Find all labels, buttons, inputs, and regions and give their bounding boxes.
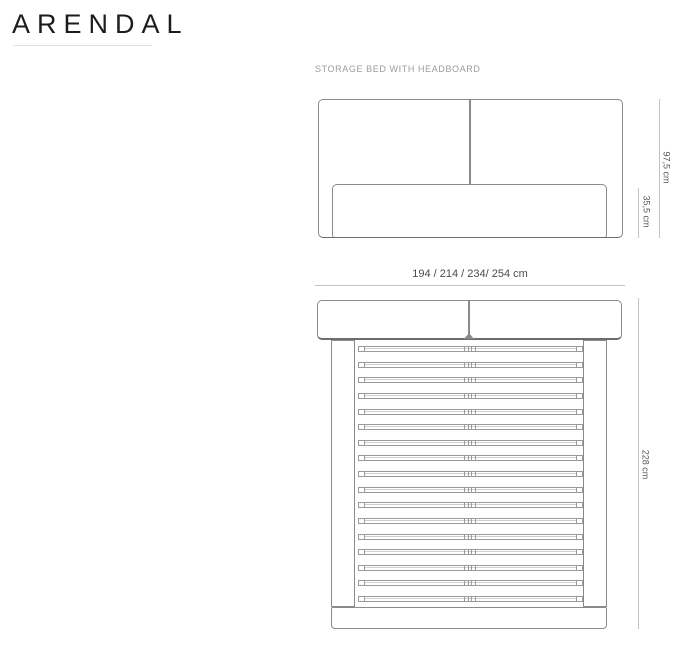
dimension-line-width bbox=[315, 285, 625, 286]
slat-center-joint bbox=[464, 519, 469, 523]
slat-end-cap-left bbox=[359, 550, 365, 554]
slat-end-cap-left bbox=[359, 363, 365, 367]
slat-end-cap-left bbox=[359, 378, 365, 382]
bed-slat bbox=[358, 424, 583, 430]
slat-center-joint bbox=[471, 597, 476, 601]
slat-end-cap-left bbox=[359, 394, 365, 398]
slat-center-joint bbox=[471, 581, 476, 585]
slat-center-joint bbox=[471, 347, 476, 351]
slat-center-joint bbox=[464, 347, 469, 351]
slat-end-cap-left bbox=[359, 472, 365, 476]
front-bed-base bbox=[332, 184, 607, 238]
slat-center-joint bbox=[464, 566, 469, 570]
slat-end-cap-left bbox=[359, 566, 365, 570]
slat-center-joint bbox=[464, 441, 469, 445]
bed-slat bbox=[358, 362, 583, 368]
slat-end-cap-right bbox=[576, 441, 582, 445]
slat-center-joint bbox=[471, 410, 476, 414]
slat-center-joint bbox=[471, 378, 476, 382]
slat-end-cap-right bbox=[576, 581, 582, 585]
slat-center-joint bbox=[471, 425, 476, 429]
slat-end-cap-right bbox=[576, 566, 582, 570]
dimension-label-width-variants: 194 / 214 / 234/ 254 cm bbox=[315, 269, 625, 280]
slat-center-joint bbox=[464, 597, 469, 601]
slat-end-cap-right bbox=[576, 519, 582, 523]
bed-slat bbox=[358, 596, 583, 602]
slat-end-cap-right bbox=[576, 378, 582, 382]
slat-end-cap-right bbox=[576, 488, 582, 492]
slat-end-cap-right bbox=[576, 425, 582, 429]
dimension-line-base-height bbox=[638, 188, 639, 238]
brand-title: ARENDAL bbox=[12, 9, 189, 40]
slat-center-joint bbox=[471, 503, 476, 507]
slat-end-cap-left bbox=[359, 503, 365, 507]
slat-end-cap-left bbox=[359, 535, 365, 539]
frame-rail-left bbox=[331, 340, 355, 607]
bed-slat bbox=[358, 393, 583, 399]
slat-center-joint bbox=[471, 472, 476, 476]
slat-center-joint bbox=[464, 410, 469, 414]
slat-end-cap-right bbox=[576, 410, 582, 414]
slat-center-joint bbox=[471, 441, 476, 445]
bed-slat bbox=[358, 549, 583, 555]
slat-end-cap-left bbox=[359, 488, 365, 492]
bed-slat bbox=[358, 502, 583, 508]
bed-slat bbox=[358, 580, 583, 586]
slat-center-joint bbox=[464, 550, 469, 554]
slat-area bbox=[358, 346, 583, 602]
slat-end-cap-left bbox=[359, 347, 365, 351]
slat-end-cap-right bbox=[576, 394, 582, 398]
bed-slat bbox=[358, 487, 583, 493]
slat-end-cap-left bbox=[359, 425, 365, 429]
slat-end-cap-right bbox=[576, 535, 582, 539]
drawing-subtitle: STORAGE BED WITH HEADBOARD bbox=[315, 64, 480, 74]
slat-end-cap-left bbox=[359, 456, 365, 460]
slat-center-joint bbox=[471, 550, 476, 554]
slat-end-cap-right bbox=[576, 597, 582, 601]
bed-slat bbox=[358, 534, 583, 540]
slat-end-cap-right bbox=[576, 472, 582, 476]
bed-slat bbox=[358, 346, 583, 352]
slat-end-cap-right bbox=[576, 456, 582, 460]
slat-center-joint bbox=[464, 581, 469, 585]
slat-center-joint bbox=[464, 378, 469, 382]
slat-center-joint bbox=[471, 519, 476, 523]
bed-slat bbox=[358, 440, 583, 446]
slat-center-joint bbox=[464, 535, 469, 539]
slat-end-cap-left bbox=[359, 597, 365, 601]
bed-slat bbox=[358, 409, 583, 415]
slat-end-cap-left bbox=[359, 519, 365, 523]
dimension-label-length: 228 cm bbox=[640, 435, 651, 495]
slat-center-joint bbox=[464, 488, 469, 492]
bed-slat bbox=[358, 518, 583, 524]
slat-end-cap-right bbox=[576, 363, 582, 367]
dimension-label-total-height: 97,5 cm bbox=[661, 138, 672, 198]
slat-center-joint bbox=[464, 425, 469, 429]
slat-center-joint bbox=[464, 394, 469, 398]
slat-end-cap-left bbox=[359, 581, 365, 585]
slat-center-joint bbox=[471, 488, 476, 492]
slat-center-joint bbox=[471, 394, 476, 398]
slat-center-joint bbox=[464, 363, 469, 367]
slat-end-cap-right bbox=[576, 347, 582, 351]
frame-footboard bbox=[331, 607, 607, 629]
slat-center-joint bbox=[464, 472, 469, 476]
slat-end-cap-right bbox=[576, 550, 582, 554]
front-headboard-seam bbox=[469, 100, 471, 185]
slat-center-joint bbox=[471, 456, 476, 460]
slat-center-joint bbox=[471, 363, 476, 367]
bed-slat bbox=[358, 377, 583, 383]
bed-slat bbox=[358, 565, 583, 571]
slat-center-joint bbox=[464, 456, 469, 460]
dimension-label-base-height: 35,5 cm bbox=[641, 182, 652, 242]
top-headboard-notch bbox=[464, 333, 474, 339]
brand-title-underline bbox=[13, 45, 152, 46]
slat-end-cap-right bbox=[576, 503, 582, 507]
bed-slat bbox=[358, 455, 583, 461]
slat-center-joint bbox=[464, 503, 469, 507]
slat-end-cap-left bbox=[359, 441, 365, 445]
frame-rail-right bbox=[583, 340, 607, 607]
bed-slat bbox=[358, 471, 583, 477]
slat-end-cap-left bbox=[359, 410, 365, 414]
slat-center-joint bbox=[471, 535, 476, 539]
slat-center-joint bbox=[471, 566, 476, 570]
